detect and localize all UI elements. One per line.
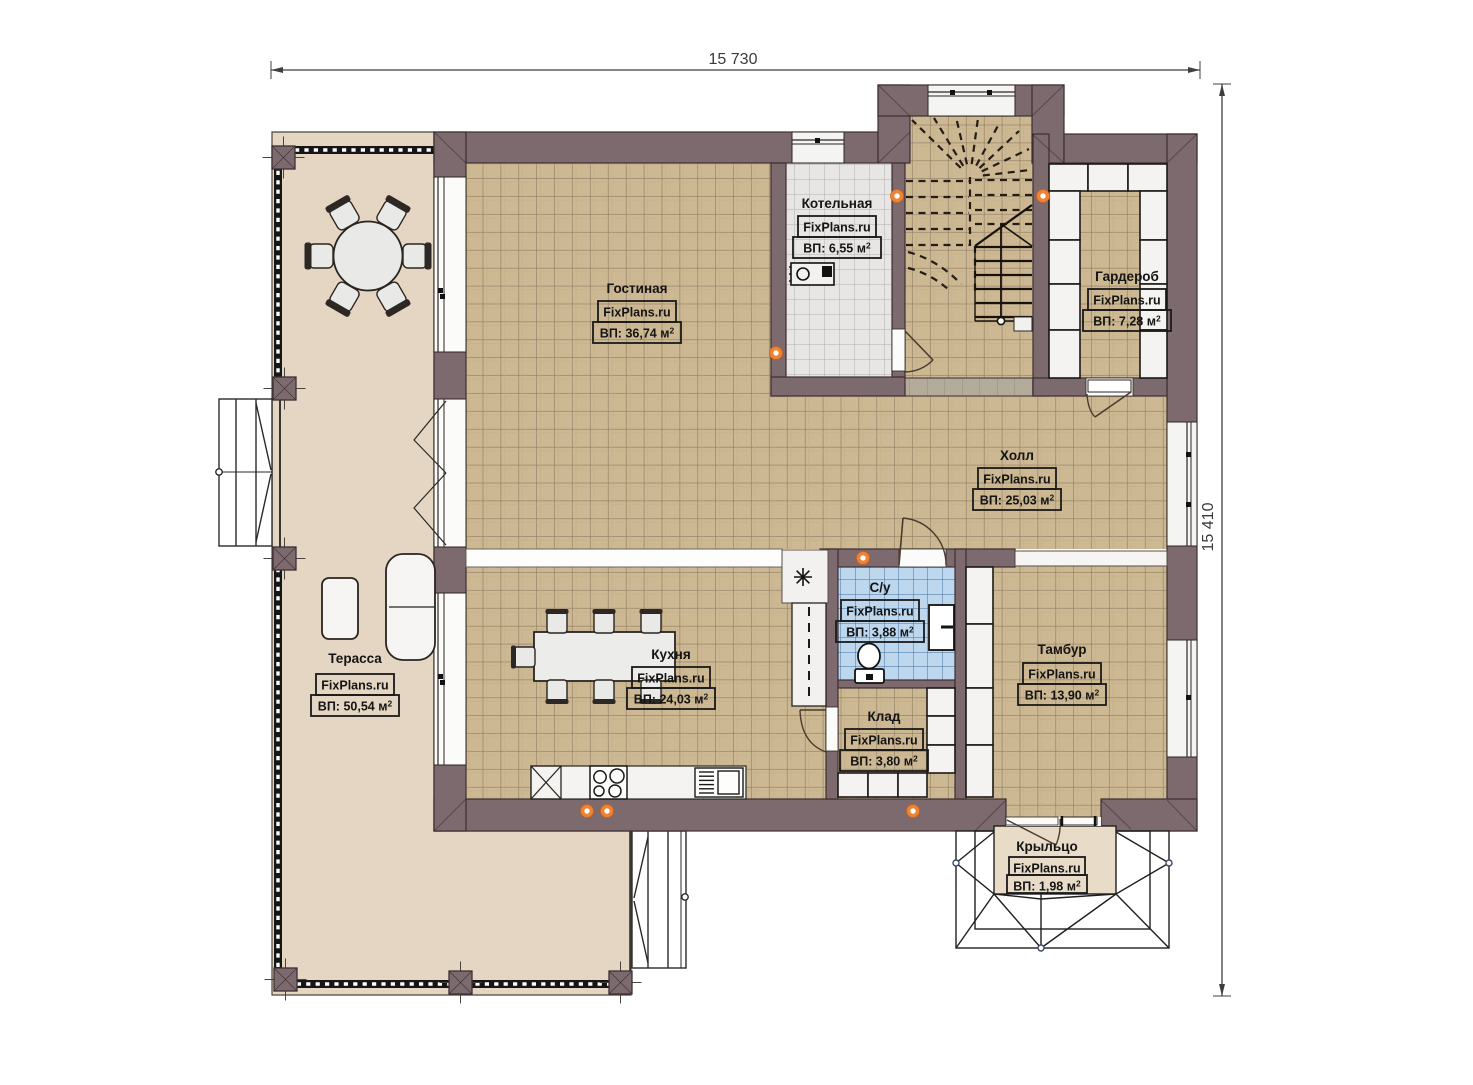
svg-text:Котельная: Котельная: [802, 196, 873, 211]
svg-text:С/у: С/у: [869, 580, 891, 595]
svg-text:Гардероб: Гардероб: [1095, 269, 1159, 284]
svg-text:ВП: 7,28 м2: ВП: 7,28 м2: [1093, 314, 1161, 329]
svg-text:Кухня: Кухня: [651, 647, 690, 662]
svg-text:ВП: 25,03 м2: ВП: 25,03 м2: [980, 493, 1055, 508]
svg-text:FixPlans.ru: FixPlans.ru: [803, 221, 870, 235]
svg-text:FixPlans.ru: FixPlans.ru: [846, 605, 913, 619]
svg-text:15 410: 15 410: [1200, 502, 1217, 551]
svg-text:ВП: 1,98 м2: ВП: 1,98 м2: [1013, 879, 1081, 894]
svg-text:Терасса: Терасса: [328, 651, 382, 666]
svg-text:ВП: 3,88 м2: ВП: 3,88 м2: [846, 625, 914, 640]
svg-text:Крыльцо: Крыльцо: [1016, 839, 1077, 854]
svg-text:Холл: Холл: [1000, 448, 1034, 463]
svg-text:Тамбур: Тамбур: [1038, 642, 1087, 657]
svg-text:ВП: 36,74 м2: ВП: 36,74 м2: [600, 326, 675, 341]
svg-text:FixPlans.ru: FixPlans.ru: [850, 734, 917, 748]
svg-text:FixPlans.ru: FixPlans.ru: [1013, 862, 1080, 876]
svg-text:ВП: 3,80 м2: ВП: 3,80 м2: [850, 754, 918, 769]
svg-text:FixPlans.ru: FixPlans.ru: [1093, 294, 1160, 308]
svg-text:ВП: 6,55 м2: ВП: 6,55 м2: [803, 241, 871, 256]
svg-text:ВП: 24,03 м2: ВП: 24,03 м2: [634, 692, 709, 707]
svg-text:15 730: 15 730: [709, 51, 758, 68]
svg-text:FixPlans.ru: FixPlans.ru: [603, 306, 670, 320]
svg-text:FixPlans.ru: FixPlans.ru: [1028, 668, 1095, 682]
svg-text:ВП: 13,90 м2: ВП: 13,90 м2: [1025, 688, 1100, 703]
svg-text:Клад: Клад: [868, 709, 901, 724]
svg-text:FixPlans.ru: FixPlans.ru: [321, 679, 388, 693]
svg-text:Гостиная: Гостиная: [606, 281, 667, 296]
svg-text:ВП: 50,54 м2: ВП: 50,54 м2: [318, 699, 393, 714]
svg-text:FixPlans.ru: FixPlans.ru: [637, 672, 704, 686]
svg-text:FixPlans.ru: FixPlans.ru: [983, 473, 1050, 487]
